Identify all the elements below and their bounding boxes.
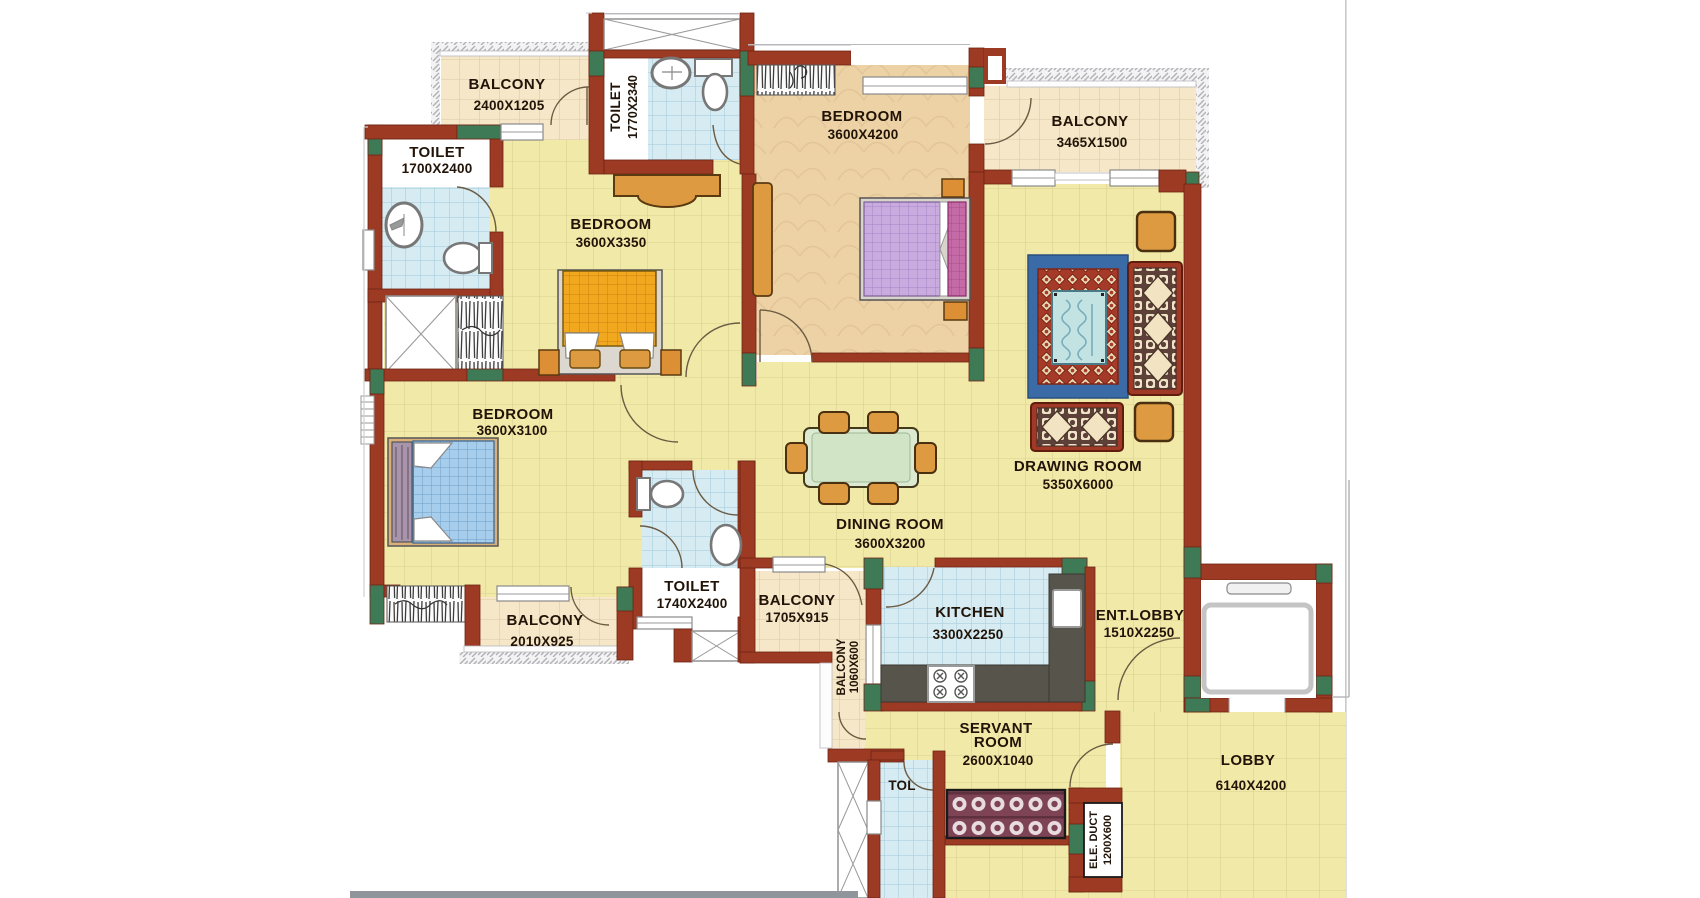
svg-text:DRAWING ROOM: DRAWING ROOM — [1014, 458, 1142, 475]
svg-text:ENT.LOBBY: ENT.LOBBY — [1096, 607, 1185, 624]
svg-text:KITCHEN: KITCHEN — [935, 604, 1004, 621]
svg-text:BALCONY: BALCONY — [1052, 113, 1129, 130]
svg-text:1770X2340: 1770X2340 — [626, 75, 640, 139]
svg-text:1740X2400: 1740X2400 — [657, 596, 728, 611]
svg-text:3600X4200: 3600X4200 — [828, 127, 899, 142]
svg-text:3465X1500: 3465X1500 — [1057, 135, 1128, 150]
svg-text:ROOM: ROOM — [974, 734, 1022, 751]
svg-text:1705X915: 1705X915 — [765, 610, 828, 625]
svg-text:BALCONY: BALCONY — [469, 76, 546, 93]
svg-text:1510X2250: 1510X2250 — [1104, 625, 1175, 640]
svg-text:5350X6000: 5350X6000 — [1043, 477, 1114, 492]
svg-text:TOILET: TOILET — [409, 144, 464, 161]
svg-text:3300X2250: 3300X2250 — [933, 627, 1004, 642]
svg-text:TOL: TOL — [888, 778, 915, 793]
svg-text:BEDROOM: BEDROOM — [821, 108, 902, 125]
svg-text:BEDROOM: BEDROOM — [570, 216, 651, 233]
svg-text:LOBBY: LOBBY — [1221, 752, 1276, 769]
svg-text:2600X1040: 2600X1040 — [963, 753, 1034, 768]
svg-text:1060X600: 1060X600 — [849, 641, 861, 693]
svg-text:ELE. DUCT: ELE. DUCT — [1088, 811, 1100, 869]
svg-text:3600X3350: 3600X3350 — [576, 235, 647, 250]
svg-text:3600X3100: 3600X3100 — [477, 423, 548, 438]
svg-text:3600X3200: 3600X3200 — [855, 536, 926, 551]
svg-text:6140X4200: 6140X4200 — [1216, 778, 1287, 793]
svg-text:TOILET: TOILET — [608, 82, 623, 132]
svg-text:BALCONY: BALCONY — [759, 592, 836, 609]
svg-text:TOILET: TOILET — [664, 578, 719, 595]
svg-text:BALCONY: BALCONY — [507, 612, 584, 629]
svg-text:BEDROOM: BEDROOM — [472, 406, 553, 423]
svg-text:2400X1205: 2400X1205 — [474, 98, 545, 113]
svg-text:DINING ROOM: DINING ROOM — [836, 516, 944, 533]
svg-text:2010X925: 2010X925 — [510, 634, 573, 649]
svg-text:BALCONY: BALCONY — [836, 638, 848, 695]
svg-text:1700X2400: 1700X2400 — [402, 161, 473, 176]
svg-text:1200X600: 1200X600 — [1102, 815, 1114, 865]
